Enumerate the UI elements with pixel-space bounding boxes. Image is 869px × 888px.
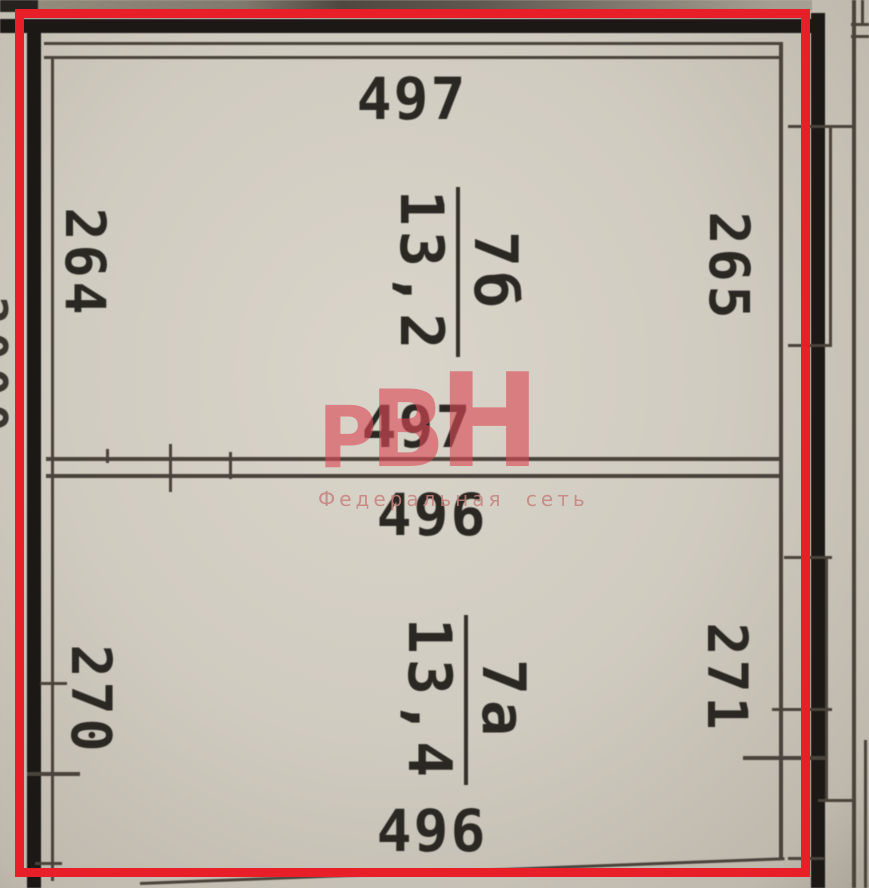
adjacent-wall-v4 xyxy=(864,740,867,888)
adjacent-wall-v2 xyxy=(829,126,832,347)
adjacent-wall-v3 xyxy=(825,557,828,800)
adjacent-wall-h6 xyxy=(818,799,855,802)
adjacent-wall-h2 xyxy=(851,35,869,38)
floorplan-photo: { "plan": { "rooms": [ { "number": "7б",… xyxy=(0,0,869,888)
highlight-frame xyxy=(15,9,810,877)
adjacent-wall-v1 xyxy=(852,0,856,888)
adjacent-wall-h1 xyxy=(851,23,869,26)
